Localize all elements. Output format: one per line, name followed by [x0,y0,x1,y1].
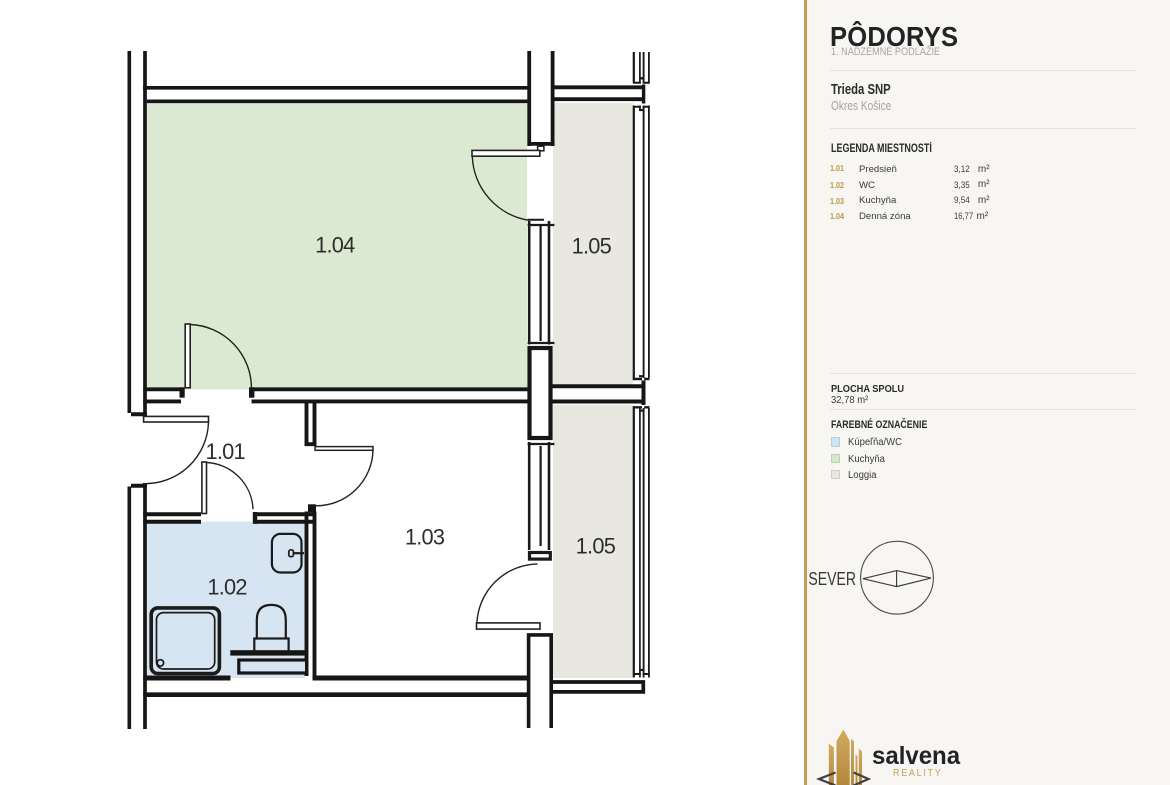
svg-text:1.05: 1.05 [576,534,616,559]
svg-text:1.01: 1.01 [205,439,245,464]
svg-text:1.05: 1.05 [572,234,612,259]
svg-text:1.04: 1.04 [315,233,355,258]
svg-text:1.02: 1.02 [207,574,247,599]
svg-text:1.03: 1.03 [405,525,445,550]
